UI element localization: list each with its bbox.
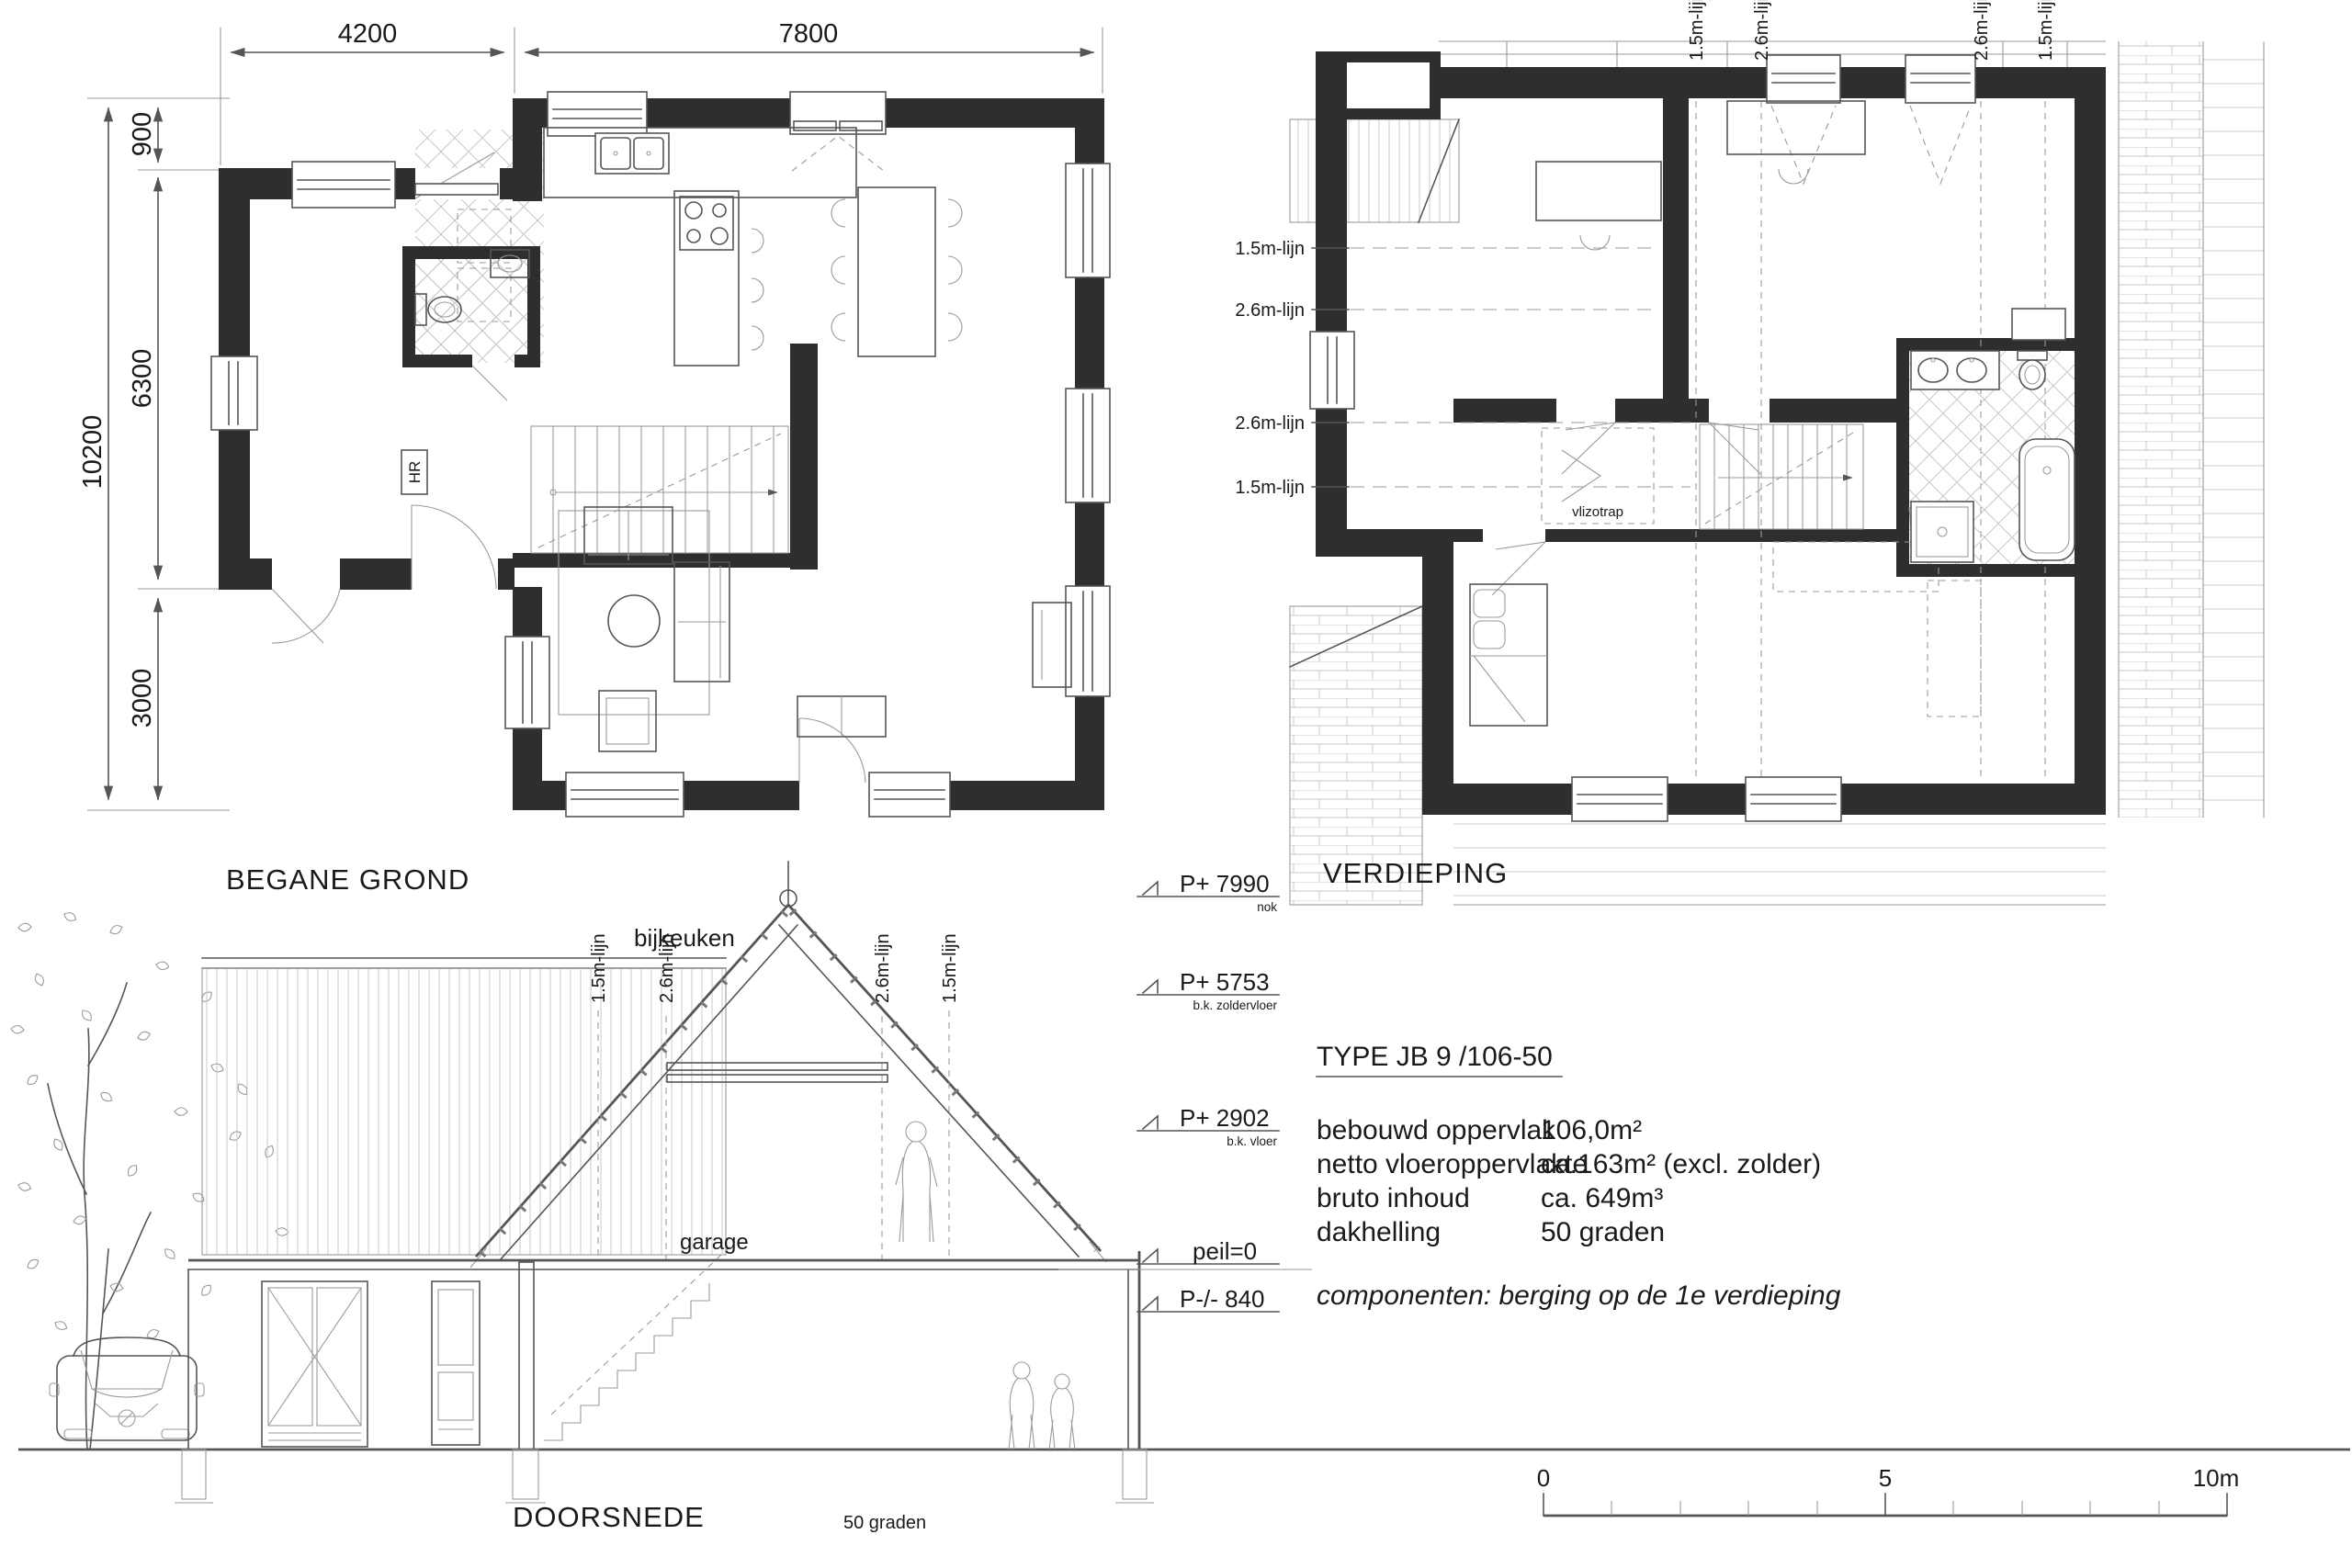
vanity-sinks-icon [1911, 351, 1999, 389]
shower-icon [1911, 502, 1973, 562]
window [869, 773, 950, 817]
spec-value-2: ca.163m² (excl. zolder) [1541, 1149, 1821, 1179]
window [1066, 164, 1110, 277]
dim-10200: 10200 [78, 415, 107, 490]
section-line-label-4: 1.5m-lijn [940, 933, 960, 1003]
ground-floor-title: BEGANE GROND [226, 863, 469, 896]
first-floor-plan: 1.5m-lijn 2.6m-lijn 2.6m-lijn 1.5m-lijn … [1235, 0, 2264, 905]
marker-value: P+ 2902 [1180, 1104, 1270, 1132]
bijkeuken-label: bijkeuken [634, 924, 735, 952]
desk [1727, 101, 1865, 184]
first-floor-staircase [1700, 424, 1863, 529]
spec-label-4: dakhelling [1317, 1217, 1441, 1247]
elevation-marker-vloer: P+ 2902 b.k. vloer [1137, 1104, 1279, 1148]
marker-value: P-/- 840 [1180, 1285, 1265, 1313]
elevation-marker-zoldervloer: P+ 5753 b.k. zoldervloer [1137, 968, 1279, 1012]
bed [1470, 584, 1547, 726]
hr-label: HR [406, 461, 424, 484]
scale-bar: 0 5 10m [1537, 1464, 2240, 1516]
sideboard [797, 696, 886, 737]
first-floor-doors [1492, 423, 1962, 595]
spec-block: TYPE JB 9 /106-50 bebouwd oppervlak 106,… [1317, 1042, 1841, 1311]
marker-value: peil=0 [1193, 1237, 1257, 1265]
dim-4200: 4200 [338, 19, 398, 49]
garage-stair [544, 1283, 709, 1440]
scale-10m: 10m [2193, 1464, 2240, 1492]
kitchen-counter [544, 128, 856, 366]
dim-6300: 6300 [128, 349, 157, 409]
meter-cupboard: HR [401, 450, 427, 494]
dining-table [831, 187, 962, 356]
type-title: TYPE JB 9 /106-50 [1317, 1042, 1553, 1072]
spec-value-1: 106,0m² [1541, 1115, 1642, 1145]
foundations [175, 1450, 1154, 1503]
entrance-door-icon [432, 1281, 480, 1445]
elevation-marker-fundering: P-/- 840 [1137, 1285, 1279, 1313]
section-drawing: bijkeuken 1.5m-lijn 2.6m-lijn 2.6m-lijn … [10, 862, 2350, 1533]
bathroom [1909, 351, 2075, 564]
spec-value-3: ca. 649m³ [1541, 1183, 1663, 1213]
roof-window [1767, 55, 1840, 184]
dim-3000: 3000 [128, 669, 157, 728]
line-label-top-3: 2.6m-lijn [1972, 0, 1992, 61]
window [292, 162, 395, 208]
drawing-canvas: 4200 7800 10200 900 6300 3000 [0, 0, 2352, 1568]
people-figures [1009, 1362, 1075, 1450]
person-figure [896, 1122, 937, 1242]
kitchen-sink-icon [595, 133, 669, 174]
window [1310, 332, 1354, 409]
dim-7800: 7800 [779, 19, 839, 49]
marker-sub: nok [1257, 900, 1277, 914]
marker-sub: b.k. vloer [1227, 1134, 1277, 1148]
line-label-top-2: 2.6m-lijn [1752, 0, 1772, 61]
elevation-marker-peil: peil=0 [1058, 1237, 1312, 1269]
ground-floor-plan: 4200 7800 10200 900 6300 3000 [78, 19, 1110, 896]
desk [1536, 162, 1661, 250]
toilet-icon [2018, 351, 2047, 389]
window [211, 356, 257, 430]
window [566, 773, 684, 817]
spec-label-1: bebouwd oppervlak [1317, 1115, 1556, 1145]
roof-pitch-label: 50 graden [843, 1513, 926, 1533]
line-label-left-4: 1.5m-lijn [1235, 478, 1305, 498]
elevation-marker-nok: P+ 7990 nok [1137, 870, 1279, 914]
back-door [790, 92, 886, 171]
window [1572, 777, 1668, 821]
window [1746, 777, 1841, 821]
section-line-label-2: 2.6m-lijn [657, 933, 677, 1003]
window [505, 637, 549, 728]
coffee-table [608, 595, 660, 647]
components-note: componenten: berging op de 1e verdieping [1317, 1280, 1841, 1311]
line-label-top-4: 1.5m-lijn [2036, 0, 2056, 61]
section-line-label-3: 2.6m-lijn [873, 933, 893, 1003]
vlizotrap-hatch: vlizotrap [1542, 428, 1654, 524]
window [1066, 586, 1110, 696]
wardrobe-hatch [1928, 581, 1981, 716]
first-floor-title: VERDIEPING [1323, 857, 1508, 889]
section-title: DOORSNEDE [513, 1501, 705, 1533]
garage-label: garage [680, 1230, 749, 1255]
line-label-left-3: 2.6m-lijn [1235, 413, 1305, 434]
spec-value-4: 50 graden [1541, 1217, 1665, 1247]
marker-sub: b.k. zoldervloer [1193, 998, 1277, 1012]
section-line-label-1: 1.5m-lijn [589, 933, 609, 1003]
window [548, 92, 647, 136]
window [1066, 389, 1110, 502]
spec-label-3: bruto inhoud [1317, 1183, 1470, 1213]
marker-value: P+ 7990 [1180, 870, 1270, 897]
section-lower-storey: garage [175, 1230, 1154, 1503]
garage-door-icon [262, 1281, 367, 1447]
vlizotrap-label: vlizotrap [1572, 504, 1623, 520]
stove-icon [680, 197, 733, 250]
ground-floor-windows [211, 92, 1110, 817]
line-label-left-1: 1.5m-lijn [1235, 239, 1305, 259]
line-label-left-2: 2.6m-lijn [1235, 300, 1305, 321]
cut-wall [519, 1262, 534, 1450]
car-icon [50, 1337, 204, 1440]
dim-900: 900 [128, 112, 157, 156]
armchair [599, 691, 656, 751]
roof-window [1905, 55, 1975, 184]
bathtub-icon [2019, 439, 2075, 560]
staircase [531, 426, 788, 553]
marker-value: P+ 5753 [1180, 968, 1270, 996]
scale-5: 5 [1879, 1464, 1892, 1492]
section-bijkeuken-block: bijkeuken [202, 924, 735, 1255]
scale-0: 0 [1537, 1464, 1550, 1492]
sofa [674, 562, 729, 682]
line-label-top-1: 1.5m-lijn [1687, 0, 1707, 61]
ground-floor-doors [272, 152, 869, 810]
closet [2012, 309, 2065, 340]
architectural-drawing-sheet: 4200 7800 10200 900 6300 3000 [0, 0, 2352, 1568]
